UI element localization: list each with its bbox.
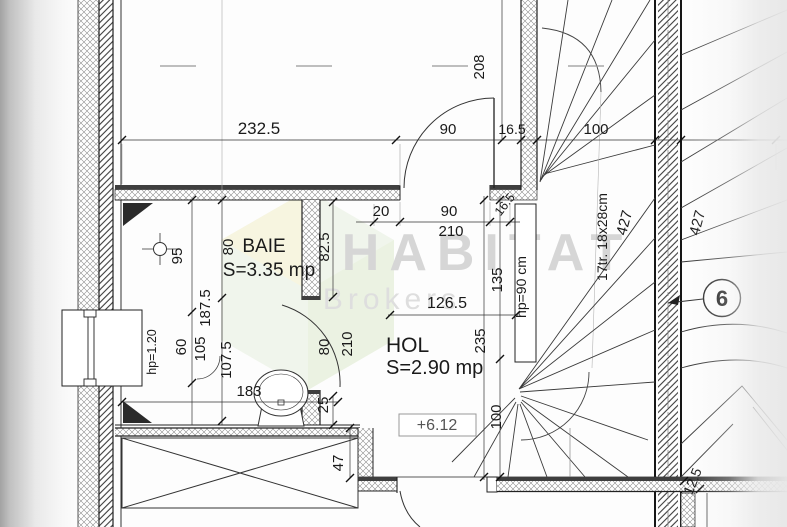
dim-baie-25: 25	[315, 397, 332, 414]
dim-hol-lower: 100	[488, 404, 505, 429]
stair-rail-note: hp=90 cm	[513, 256, 529, 318]
watermark-title: HABITAT	[342, 224, 632, 282]
level-marker: +6.12	[399, 414, 476, 436]
floor-plan-page: HABITAT Brokers	[0, 0, 787, 527]
dim-wall-top-thk: 16.5	[498, 121, 525, 137]
level-marker-value: +6.12	[417, 417, 458, 434]
dim-baie-80: 80	[220, 239, 237, 256]
dim-baie-width: 183	[236, 383, 261, 400]
dim-stair-top-width: 100	[583, 121, 608, 138]
dim-room-top-width: 232.5	[238, 119, 281, 138]
room-hol-area: S=2.90 mp	[386, 357, 483, 379]
dim-baie-187-5: 187.5	[197, 289, 214, 327]
dim-door-hol-width: 90	[441, 203, 458, 220]
dim-hol-upper: 135	[489, 267, 506, 292]
dim-baie-95: 95	[169, 248, 186, 265]
dim-hol-width: 126.5	[427, 295, 467, 312]
dim-hol-total: 235	[472, 328, 489, 353]
dim-door-hol-height: 210	[438, 223, 463, 240]
stair-tread-note: 17tr. 18x28cm	[594, 193, 610, 281]
dim-shaft-depth: 47	[330, 455, 347, 472]
dim-room-top-depth: 208	[471, 54, 488, 79]
dim-seg-20: 20	[373, 203, 390, 220]
dim-door-top-width: 90	[440, 121, 457, 138]
wall-stair-spine	[655, 0, 681, 527]
floor-plan-svg: HABITAT Brokers	[0, 0, 787, 527]
dim-baie-107-5: 107.5	[218, 341, 235, 379]
room-baie-area: S=3.35 mp	[223, 260, 315, 281]
window	[62, 310, 142, 386]
dim-door-baie-height: 210	[339, 331, 356, 356]
dim-baie-60: 60	[173, 339, 190, 356]
wall-stair-left	[521, 0, 537, 190]
washbasin	[254, 370, 308, 426]
page-edge-right	[690, 0, 787, 527]
room-hol-name: HOL	[386, 334, 429, 357]
dim-baie-105: 105	[192, 336, 209, 361]
page-edge-left	[0, 0, 79, 527]
dim-baie-82-5: 82.5	[316, 232, 333, 261]
dim-door-baie-width: 80	[316, 339, 333, 356]
room-baie-name: BAIE	[242, 236, 285, 257]
window-parapet-note: hp=1.20	[145, 329, 159, 375]
